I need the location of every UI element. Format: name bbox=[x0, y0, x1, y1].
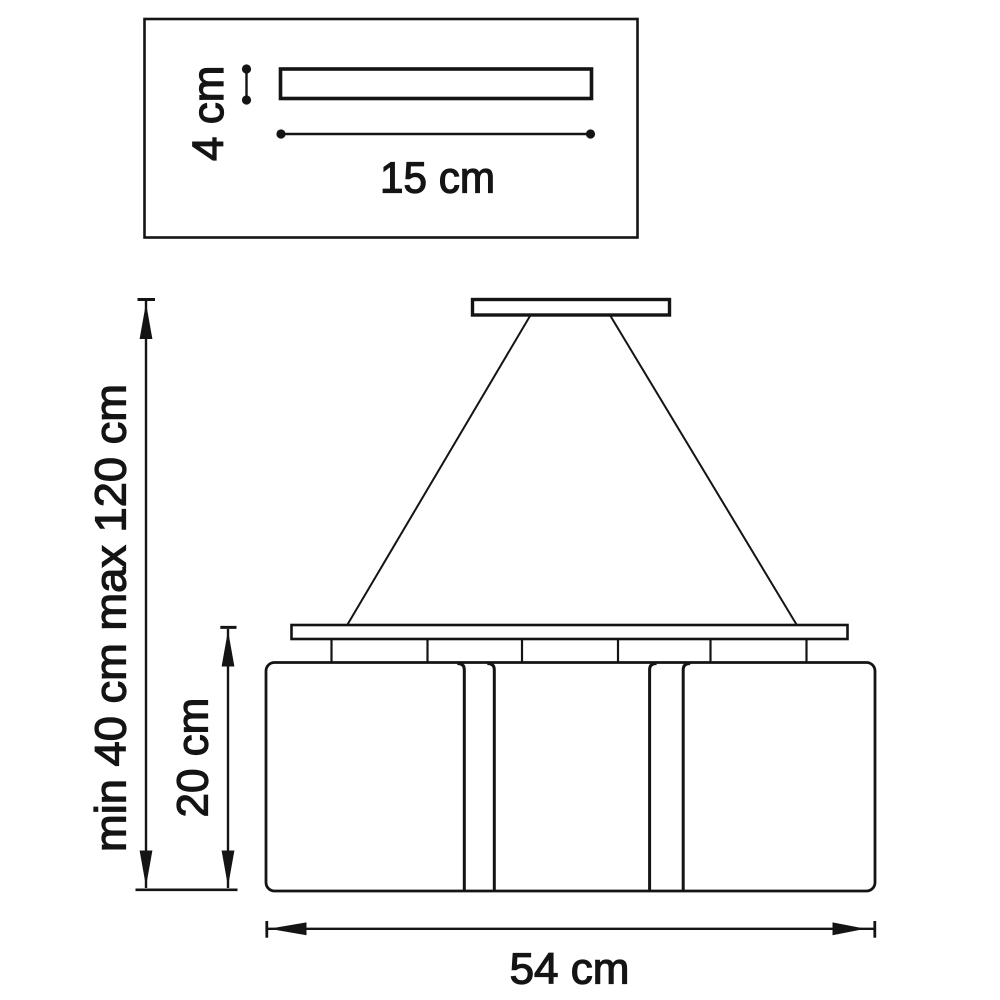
svg-text:min 40 cm max 120 cm: min 40 cm max 120 cm bbox=[87, 384, 136, 852]
svg-text:4 cm: 4 cm bbox=[184, 66, 233, 161]
svg-text:15 cm: 15 cm bbox=[380, 154, 495, 203]
svg-text:54 cm: 54 cm bbox=[510, 945, 630, 994]
svg-text:20 cm: 20 cm bbox=[169, 698, 218, 818]
